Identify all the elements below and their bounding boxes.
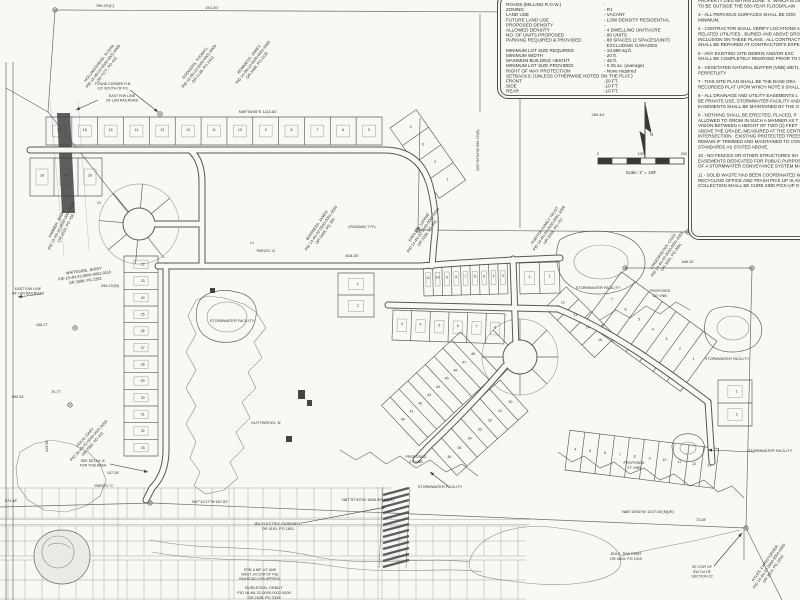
lot-number: 46 xyxy=(453,369,457,373)
scale-bar: 0 100' 200' Scale: 1" = 100' xyxy=(597,152,688,175)
lot-number: 2 xyxy=(357,304,359,308)
note-item: PROPERTY LIES WITHIN ZONE "X" WHICH IS D… xyxy=(698,0,800,9)
lot-number: 6 xyxy=(342,128,344,132)
lot-number: 15 xyxy=(598,338,602,342)
lot-number: 25 xyxy=(141,313,145,317)
note-item: 10 - NO FENCES OR OTHER STRUCTURES SH EA… xyxy=(698,153,800,169)
lot-number: 11 xyxy=(212,128,216,132)
lot-number: 14 xyxy=(134,128,138,132)
scale-caption: Scale: 1" = 100' xyxy=(626,170,657,175)
map-label: RYLES, CHRISTOPHERPID 14-4N-22-0000-0004… xyxy=(747,539,791,592)
map-label: BONNIESS, JAMESPID 14-4N-22-0500-0001-00… xyxy=(299,201,343,254)
note-item: 4 - CONTRACTOR SHALL VERIFY LOCATIONS A … xyxy=(698,26,800,47)
map-label: JEA ELECTRIC EASEMENTOR 4191, PG 1601 xyxy=(254,522,303,531)
lot-number: 32 xyxy=(141,429,145,433)
lot-number: 4 xyxy=(574,447,576,451)
lot-number: 4 xyxy=(420,323,422,327)
lot-number: 9 xyxy=(265,128,267,132)
note-item: 8 - ALL DRAINAGE AND UTILITY EASEMENTS L… xyxy=(698,93,800,109)
lot-number: 5 xyxy=(483,274,485,278)
lot-number: 28 xyxy=(141,363,145,367)
map-label: BONNIESS, JAMESPID 14-4N-22-0500-0001-00… xyxy=(230,36,275,88)
map-label: 593.52' xyxy=(12,395,25,399)
map-label: 147.26' xyxy=(107,471,120,475)
map-label: 296.23'(M) xyxy=(101,284,120,288)
lot-number: 11 xyxy=(426,276,430,280)
map-label: 21 xyxy=(97,201,101,205)
lot-number: 5 xyxy=(638,317,640,321)
site-data-table: ROADS (MILLING R.O.W.)-ZONING- R1LAND US… xyxy=(497,0,694,99)
map-label: N89°06'06"E 1115.82' xyxy=(239,109,278,114)
map-label: PORTER FAMILY TRUSTPID 14-4N-22-0500-000… xyxy=(527,201,571,254)
map-label: LINGENFELTER, CHADPID 14-4N-22-0500-0001… xyxy=(645,227,689,280)
lot-number: 3 xyxy=(502,274,504,278)
map-label: N00°04'54"W 596.19'(R) xyxy=(476,129,480,171)
lot-number: 36 xyxy=(447,455,451,459)
roads xyxy=(30,150,712,500)
lot-number: 43 xyxy=(427,393,431,397)
lot-number: 8 xyxy=(634,455,636,459)
map-label: 201.40' xyxy=(206,5,219,10)
lot-number: 33 xyxy=(141,446,145,450)
lot-number: 23 xyxy=(141,279,145,283)
map-label: PROPOSED27' VNB xyxy=(624,461,645,470)
lot-number: 7 xyxy=(465,275,467,279)
lot-number: 27 xyxy=(141,346,145,350)
map-label: RODGERS, THOMASPID 15-4N-22-0500-0001-00… xyxy=(176,40,221,92)
lot-number: 13 xyxy=(573,313,577,317)
lot-number: 18 xyxy=(40,173,44,177)
lot-number: 8 xyxy=(455,275,457,279)
map-label: 574.48' xyxy=(5,499,18,503)
north-label: N xyxy=(650,132,653,137)
lot-number: 14 xyxy=(586,325,590,329)
note-item: 11 - SOLID WASTE HAS BEEN COORDINATED W … xyxy=(698,173,800,189)
map-label: STORMWATER FACILITY xyxy=(748,449,793,453)
lot-number: 48 xyxy=(471,352,475,356)
lot-number: 12 xyxy=(561,301,565,305)
lot-number: 22 xyxy=(141,263,145,267)
lot-number: 10 xyxy=(662,458,666,462)
lot-number: 1 xyxy=(447,178,449,182)
map-label: BURLESON, GRADYPID 16-4N-22-0000-0002-00… xyxy=(237,585,291,600)
lot-number: 3 xyxy=(665,337,667,341)
lot-number: 12 xyxy=(186,128,190,132)
lot-number: 7 xyxy=(476,325,478,329)
map-label: EAST R/W LINEOF L&N RAILROAD xyxy=(12,287,45,296)
lot-number: 31 xyxy=(141,413,145,417)
note-item: 7 - THIS SITE PLAN SHALL BE THE BASE DRA… xyxy=(698,79,800,90)
map-label: EAST R/W LINEOF L&N RAILROAD xyxy=(106,94,139,103)
scale-tick-100: 100' xyxy=(638,152,645,156)
lot-number: 2 xyxy=(529,275,531,279)
lot-number: 7 xyxy=(619,453,621,457)
lot-number: 30 xyxy=(508,400,512,404)
lot-number: 5 xyxy=(589,449,591,453)
lot-number: 26 xyxy=(141,329,145,333)
lot-number: 20 xyxy=(88,173,92,177)
lot-number: 41 xyxy=(410,409,414,413)
lot-number: 2 xyxy=(679,347,681,351)
map-label: L2 xyxy=(250,241,254,245)
lot-number: 33 xyxy=(478,427,482,431)
lot-number: 15 xyxy=(109,128,113,132)
note-item: 9 - NOTHING SHALL BE ERECTED, PLACED, P … xyxy=(698,113,800,150)
lot-number: 40 xyxy=(401,418,405,422)
lot-number: 7 xyxy=(316,128,318,132)
lot-number: 24 xyxy=(141,296,145,300)
lot-number: 4 xyxy=(493,274,495,278)
lot-number: 4 xyxy=(652,327,654,331)
lot-number: 1 xyxy=(357,282,359,286)
lot-number: 1 xyxy=(549,274,551,278)
lot-number: 6 xyxy=(625,307,627,311)
note-item: 5 - ANY EXISTING SITE DEBRIS AND/OR EXC … xyxy=(698,51,800,62)
lot-number: 3 xyxy=(401,322,403,326)
map-label: OUT PARCEL 'A' xyxy=(251,420,282,425)
map-label: 73.38' xyxy=(696,518,707,522)
map-label: N87°42'17"W 657.81' xyxy=(192,500,228,504)
lot-number: 2 xyxy=(736,413,738,417)
map-label: PARCEL 'A' xyxy=(257,249,276,253)
lot-number: 35 xyxy=(457,446,461,450)
lot-number: 8 xyxy=(291,128,293,132)
lot-number: 5 xyxy=(438,323,440,327)
map-label: STORMWATER FACILITY xyxy=(418,485,463,489)
lot-number: 3 xyxy=(422,143,424,147)
lot-number: 12 xyxy=(692,462,696,466)
lot-number: 42 xyxy=(418,401,422,405)
map-label: 646.32' xyxy=(682,260,695,264)
scale-tick-0: 0 xyxy=(597,152,599,156)
lot-number: 32 xyxy=(488,418,492,422)
map-label: 443.56' xyxy=(45,440,49,453)
site-table-row: PARKING REQUIRED & PROVIDED- 88 SPACES (… xyxy=(506,38,691,48)
north-arrow-icon: N xyxy=(640,102,654,159)
plat-sheet: 1716151413121110987654321181920222324252… xyxy=(0,0,800,600)
site-table-row: REAR-10 FT. xyxy=(506,89,691,94)
map-label: PROPOSED20' VNB xyxy=(650,289,671,298)
lot-number: 6 xyxy=(474,275,476,279)
map-label: HOLM, GARYPID 16-4N-22-0000-0001-0005OR … xyxy=(65,415,112,465)
lot-number: 34 xyxy=(468,437,472,441)
lot-number: 13 xyxy=(160,128,164,132)
lot-number: 19 xyxy=(64,173,68,177)
map-label: SEE DETAIL 'A'FOR THIS AREA xyxy=(80,459,107,468)
wetland-and-pond-outlines xyxy=(16,231,762,585)
lot-number: 45 xyxy=(445,377,449,381)
map-label: FOUND CORNER R.B.0.6' SOUTH OF P/L xyxy=(95,82,131,91)
map-label: (ROADWAY TYP.) xyxy=(348,225,375,229)
lot-number: 8 xyxy=(494,325,496,329)
lot-number: 5 xyxy=(368,128,370,132)
map-label: 818.35' xyxy=(346,253,359,258)
lot-number: 4 xyxy=(410,125,412,129)
lot-number: 6 xyxy=(457,324,459,328)
lot-number: 6 xyxy=(604,451,606,455)
lot-number: 44 xyxy=(436,385,440,389)
map-label: STORMWATER FACILITY xyxy=(210,319,255,323)
lot-number: 1 xyxy=(693,357,695,361)
lot-number: 31 xyxy=(498,409,502,413)
lot-number: 16 xyxy=(83,128,87,132)
lot-number: 9 xyxy=(446,275,448,279)
map-label: 436.27' xyxy=(36,323,49,327)
lot-number: 10 xyxy=(238,128,242,132)
map-label: JEA E. R/W ESMTOR 3615, PG 1910 xyxy=(610,552,643,561)
lot-number: 7 xyxy=(611,298,613,302)
map-label: N88°18'36"W 1027.04'(M)(R) xyxy=(622,509,674,514)
map-label: N87°57'49"W 1565.39'(M)(R) xyxy=(342,497,394,502)
map-label: STORMWATER FACILITY xyxy=(576,286,621,290)
map-label: 76.77' xyxy=(51,390,62,394)
map-label: FARMER, JERRYPID 15-4N-22-0500-0001-0100… xyxy=(42,198,81,253)
proposed-lots xyxy=(30,110,752,489)
map-label: 280.44' xyxy=(592,112,605,117)
lot-number: 47 xyxy=(462,360,466,364)
note-item: 6 - VEGETATED NATURAL BUFFER (VNB) WETL … xyxy=(698,65,800,76)
lot-number: 2 xyxy=(434,160,436,164)
map-label: SE COR OFSW 1/4 OFSECTION 22 xyxy=(691,565,713,579)
lot-number: 11 xyxy=(677,460,681,464)
map-label: PROPOSED27' VNB xyxy=(406,455,427,464)
scale-tick-200: 200' xyxy=(681,152,688,156)
lot-number: 17 xyxy=(57,128,61,132)
map-label: STORMWATER FACILITY xyxy=(705,357,750,361)
lot-number: 29 xyxy=(141,379,145,383)
lot-number: 1 xyxy=(736,390,738,394)
lot-number: 30 xyxy=(141,396,145,400)
lot-number: 9 xyxy=(649,456,651,460)
notes-panel: PROPERTY LIES WITHIN ZONE "X" WHICH IS D… xyxy=(688,0,800,240)
map-label: PARCEL 'C' xyxy=(95,484,114,488)
note-item: 3 - ALL PERVIOUS SURFACES SHALL BE SOD M… xyxy=(698,12,800,23)
lot-number: 10 xyxy=(436,276,440,280)
lot-number: 13 xyxy=(707,464,711,468)
map-label: POB: A NIP 1/2" ANDWEST 1/4 COR OF THERA… xyxy=(239,568,281,581)
map-label: 769.20'(C) xyxy=(96,3,115,8)
